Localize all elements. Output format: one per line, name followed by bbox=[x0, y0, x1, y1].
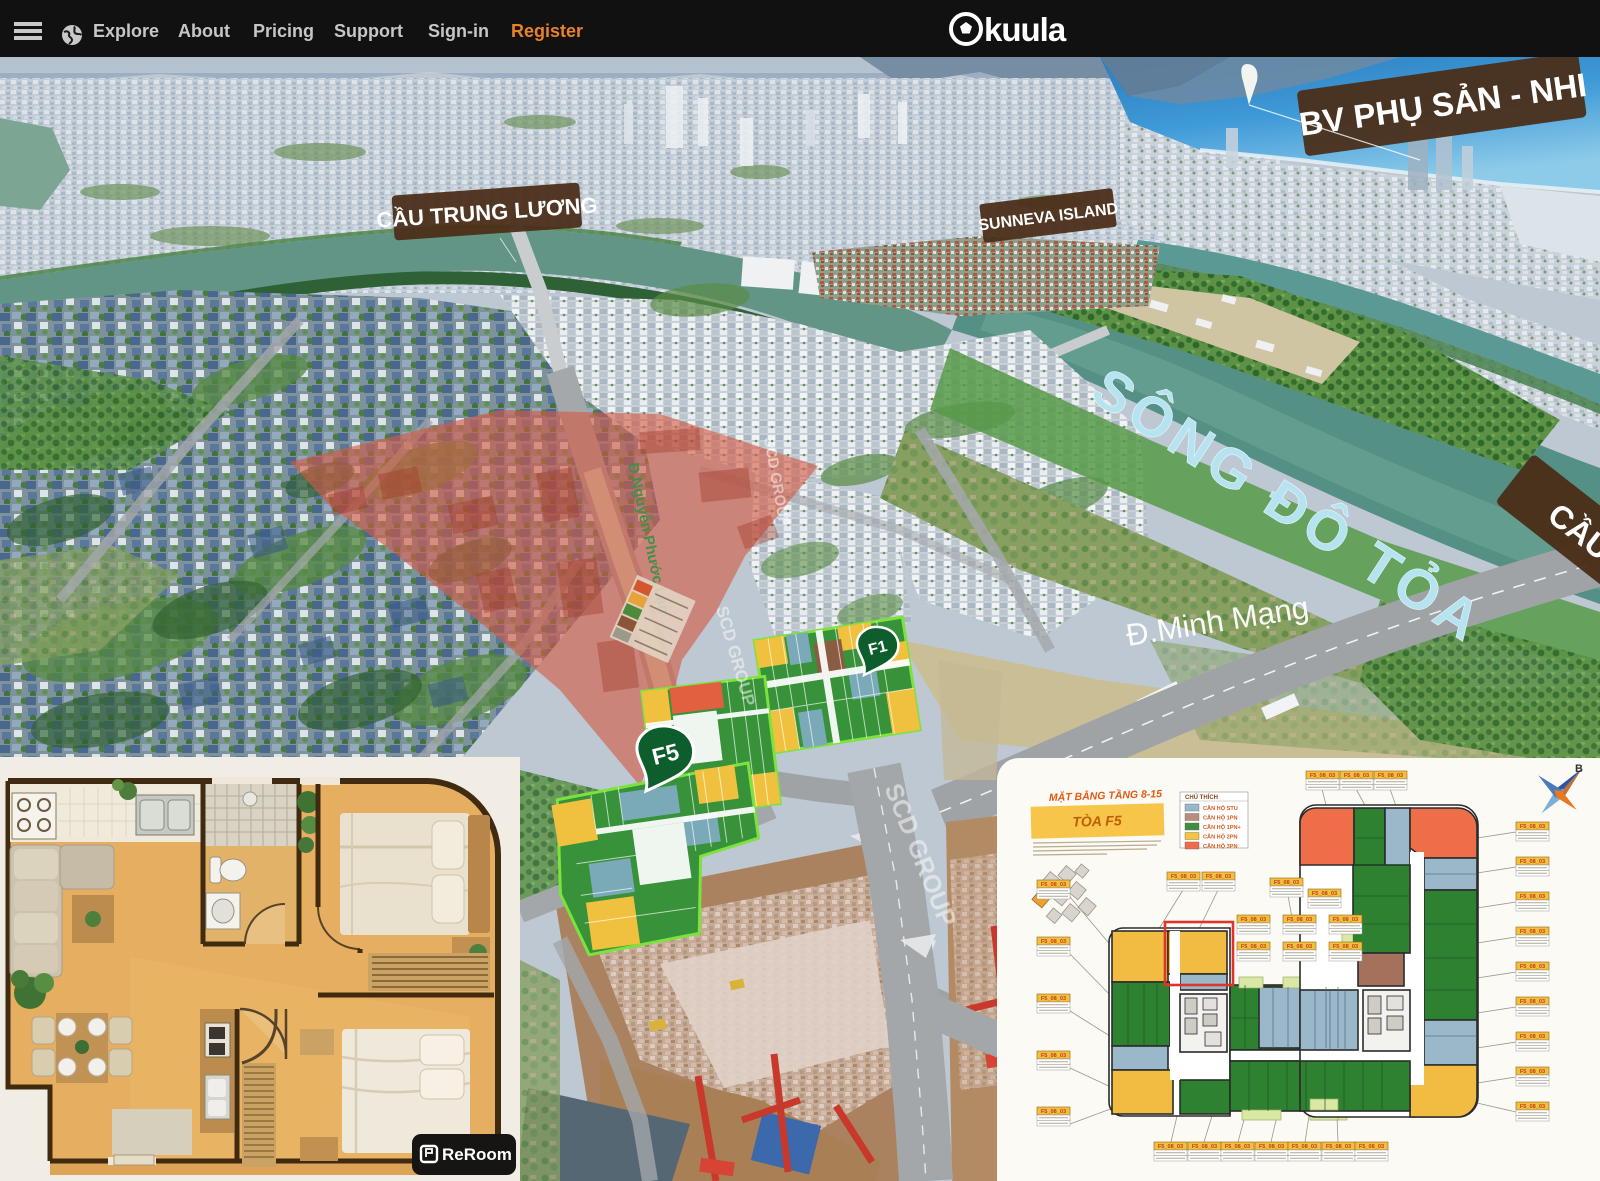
svg-text:kuula: kuula bbox=[984, 11, 1067, 48]
svg-text:CHÚ THÍCH: CHÚ THÍCH bbox=[1185, 793, 1218, 801]
svg-text:ReRoom: ReRoom bbox=[442, 1145, 512, 1164]
svg-text:CĂN HỘ 2PN: CĂN HỘ 2PN bbox=[1203, 833, 1238, 841]
svg-text:CĂN HỘ 1PN: CĂN HỘ 1PN bbox=[1203, 814, 1238, 822]
svg-text:B: B bbox=[1575, 763, 1583, 775]
svg-text:CĂN HỘ 1PN+: CĂN HỘ 1PN+ bbox=[1203, 823, 1241, 831]
svg-text:CĂN HỘ STU: CĂN HỘ STU bbox=[1203, 804, 1238, 812]
svg-text:CĂN HỘ 3PN: CĂN HỘ 3PN bbox=[1203, 842, 1238, 850]
svg-text:TÒA F5: TÒA F5 bbox=[1072, 811, 1122, 829]
